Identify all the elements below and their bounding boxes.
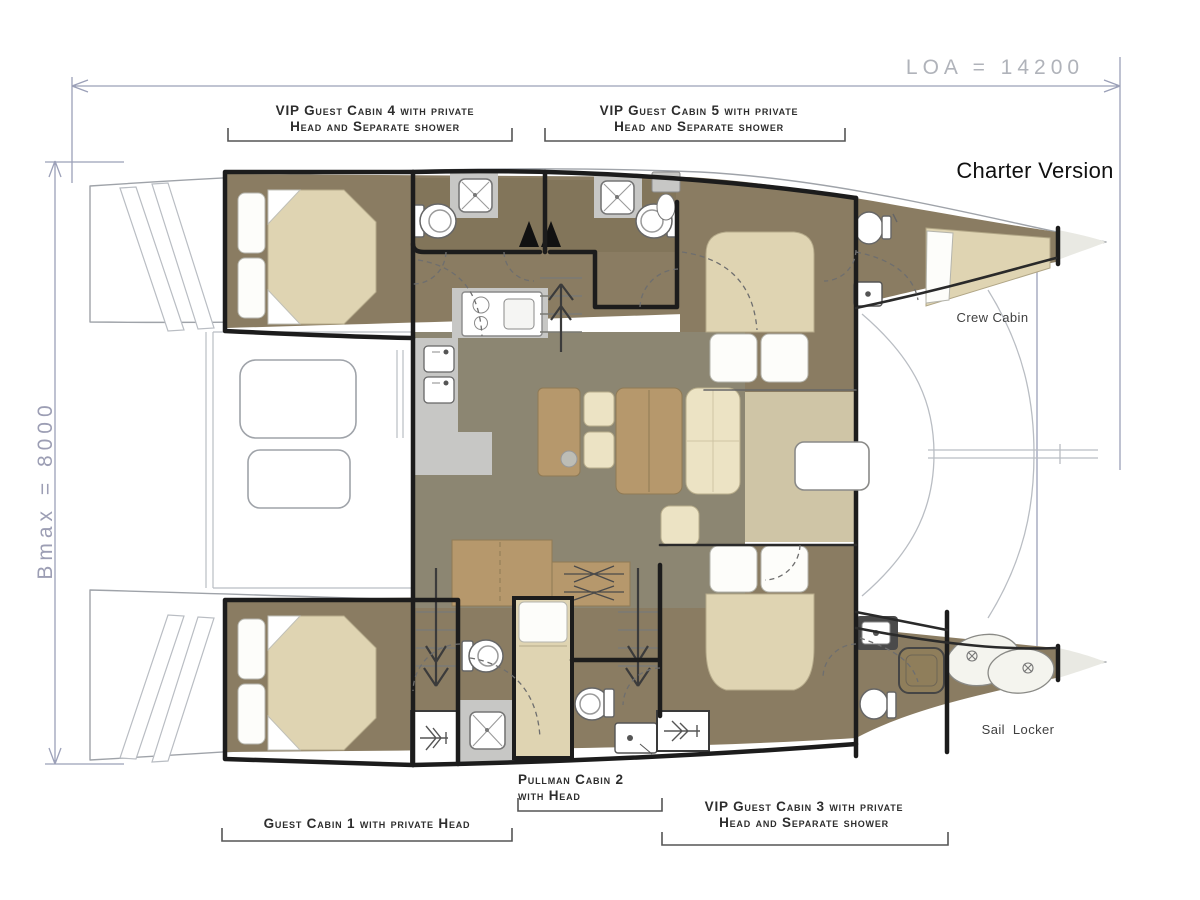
- pillow: [710, 334, 757, 382]
- pillow: [710, 546, 757, 592]
- boat-floor-plan-drawing: [0, 0, 1200, 900]
- port-bow-tip: [1058, 230, 1106, 260]
- vip3-label-line2: Head and Separate shower: [658, 815, 950, 831]
- head4-toilet: [413, 204, 456, 238]
- vip3-toilet: [860, 689, 896, 719]
- loa-dimension-label: LOA = 14200: [880, 56, 1110, 80]
- forward-door: [795, 442, 869, 490]
- galley-stove: [462, 292, 542, 336]
- pullman2-label-line1: Pullman Cabin 2: [518, 772, 688, 788]
- aft-cockpit: [206, 332, 412, 588]
- vip3-bracket: [662, 832, 948, 845]
- vip4-cabin-label: VIP Guest Cabin 4 with private Head and …: [230, 103, 520, 134]
- bowsprit-beam: [928, 444, 1098, 464]
- charter-version-title: Charter Version: [930, 158, 1140, 184]
- crew-cabin-label: Crew Cabin: [935, 310, 1050, 325]
- stool: [561, 451, 577, 467]
- crew-bed: [926, 228, 1050, 306]
- cockpit-table-large: [240, 360, 356, 438]
- side-table: [661, 506, 699, 546]
- vip5-cabin-label: VIP Guest Cabin 5 with private Head and …: [553, 103, 845, 134]
- sail-locker-label: Sail Locker: [955, 722, 1081, 737]
- cockpit-table-small: [248, 450, 350, 508]
- cabin1-toilet: [462, 640, 503, 672]
- vip4-label-line2: Head and Separate shower: [230, 119, 520, 135]
- head5-shower: [601, 181, 634, 214]
- floor-plan-page: LOA = 14200 Bmax = 8000 Charter Version …: [0, 0, 1200, 900]
- pillow: [761, 334, 808, 382]
- pillow: [238, 193, 265, 253]
- vip3-shower-pan: [899, 648, 944, 693]
- pillow: [238, 684, 265, 744]
- salon-dinette: [538, 388, 614, 476]
- vip3-label-line1: VIP Guest Cabin 3 with private: [658, 799, 950, 815]
- vip5-label-line2: Head and Separate shower: [553, 119, 845, 135]
- cabin1-shower: [470, 712, 505, 749]
- vip3-cabin-label: VIP Guest Cabin 3 with private Head and …: [658, 799, 950, 830]
- foredeck-trampoline: [862, 290, 1098, 618]
- pullman-sink: [615, 723, 657, 754]
- head4-shower: [459, 179, 492, 212]
- pullman-toilet: [575, 688, 614, 720]
- vip4-label-line1: VIP Guest Cabin 4 with private: [230, 103, 520, 119]
- deck-hatch-left: [411, 711, 457, 765]
- pillow: [238, 619, 265, 679]
- deck-hatch-right: [657, 711, 709, 751]
- vip5-label-line1: VIP Guest Cabin 5 with private: [553, 103, 845, 119]
- pillow: [238, 258, 265, 318]
- crew-toilet: [855, 212, 897, 244]
- starboard-bow-tip: [1058, 648, 1106, 678]
- pullman-bunk: [514, 598, 572, 758]
- pillow: [761, 546, 808, 592]
- pillow: [519, 602, 567, 642]
- loa-dimension-line: [72, 80, 1120, 92]
- bmax-dimension-label: Bmax = 8000: [34, 380, 58, 600]
- guest1-cabin-label: Guest Cabin 1 with private Head: [222, 816, 512, 832]
